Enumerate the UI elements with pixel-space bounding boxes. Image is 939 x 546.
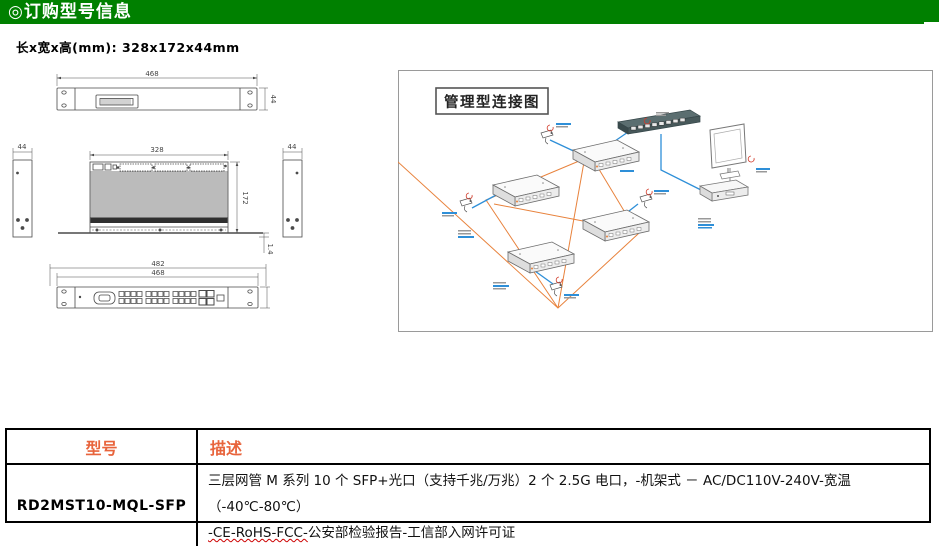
front-view-drawing (57, 74, 268, 110)
table-header-description: 描述 (198, 430, 929, 465)
dim-top-width: 328 (150, 146, 163, 154)
description-certifications: -CE-RoHS-FCC- (208, 525, 308, 541)
dim-rear-outer-width: 482 (151, 260, 164, 268)
ordering-table: 型号 描述 RD2MST10-MQL-SFP 三层网管 M 系列 10 个 SF… (5, 428, 931, 523)
table-header-model: 型号 (7, 430, 198, 465)
right-side-view-drawing (283, 148, 302, 237)
size-label: 长x宽x高(mm): 328x172x44mm (16, 37, 240, 56)
table-cell-description: 三层网管 M 系列 10 个 SFP+光口（支持千兆/万兆）2 个 2.5G 电… (198, 465, 929, 546)
dim-top-depth: 172 (241, 191, 249, 204)
dim-front-height: 44 (269, 95, 277, 104)
dim-right-side-width: 44 (288, 143, 297, 151)
top-view-drawing (58, 151, 269, 253)
diagram-title: 管理型连接图 (444, 93, 540, 111)
dim-front-width: 468 (145, 70, 158, 78)
dim-left-side-width: 44 (18, 143, 27, 151)
application-diagram: 管理型连接图 (398, 70, 933, 332)
sfp-port-block (199, 291, 214, 306)
diagram-title-box: 管理型连接图 (436, 88, 548, 114)
left-side-view-drawing (13, 148, 32, 237)
dim-ear-thickness: 1.4 (266, 243, 274, 255)
dim-rear-inner-width: 468 (151, 269, 164, 277)
rj45-port-row (119, 292, 196, 304)
dimension-drawings: 468 44 44 (0, 60, 320, 360)
description-line-2-rest: 公安部检验报告-工信部入网许可证 (308, 525, 515, 541)
table-cell-model: RD2MST10-MQL-SFP (7, 465, 198, 546)
description-line-1: 三层网管 M 系列 10 个 SFP+光口（支持千兆/万兆）2 个 2.5G 电… (208, 468, 923, 520)
description-line-2: -CE-RoHS-FCC-公安部检验报告-工信部入网许可证 (208, 520, 923, 546)
section-header-ordering: ◎订购型号信息 (0, 0, 924, 24)
